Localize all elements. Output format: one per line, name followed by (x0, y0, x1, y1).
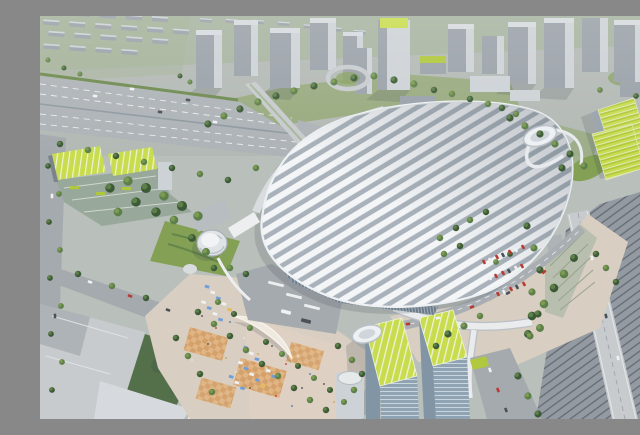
atmospheric-haze (40, 16, 640, 419)
architectural-aerial-rendering: Aerial architectural rendering of a larg… (40, 16, 640, 419)
